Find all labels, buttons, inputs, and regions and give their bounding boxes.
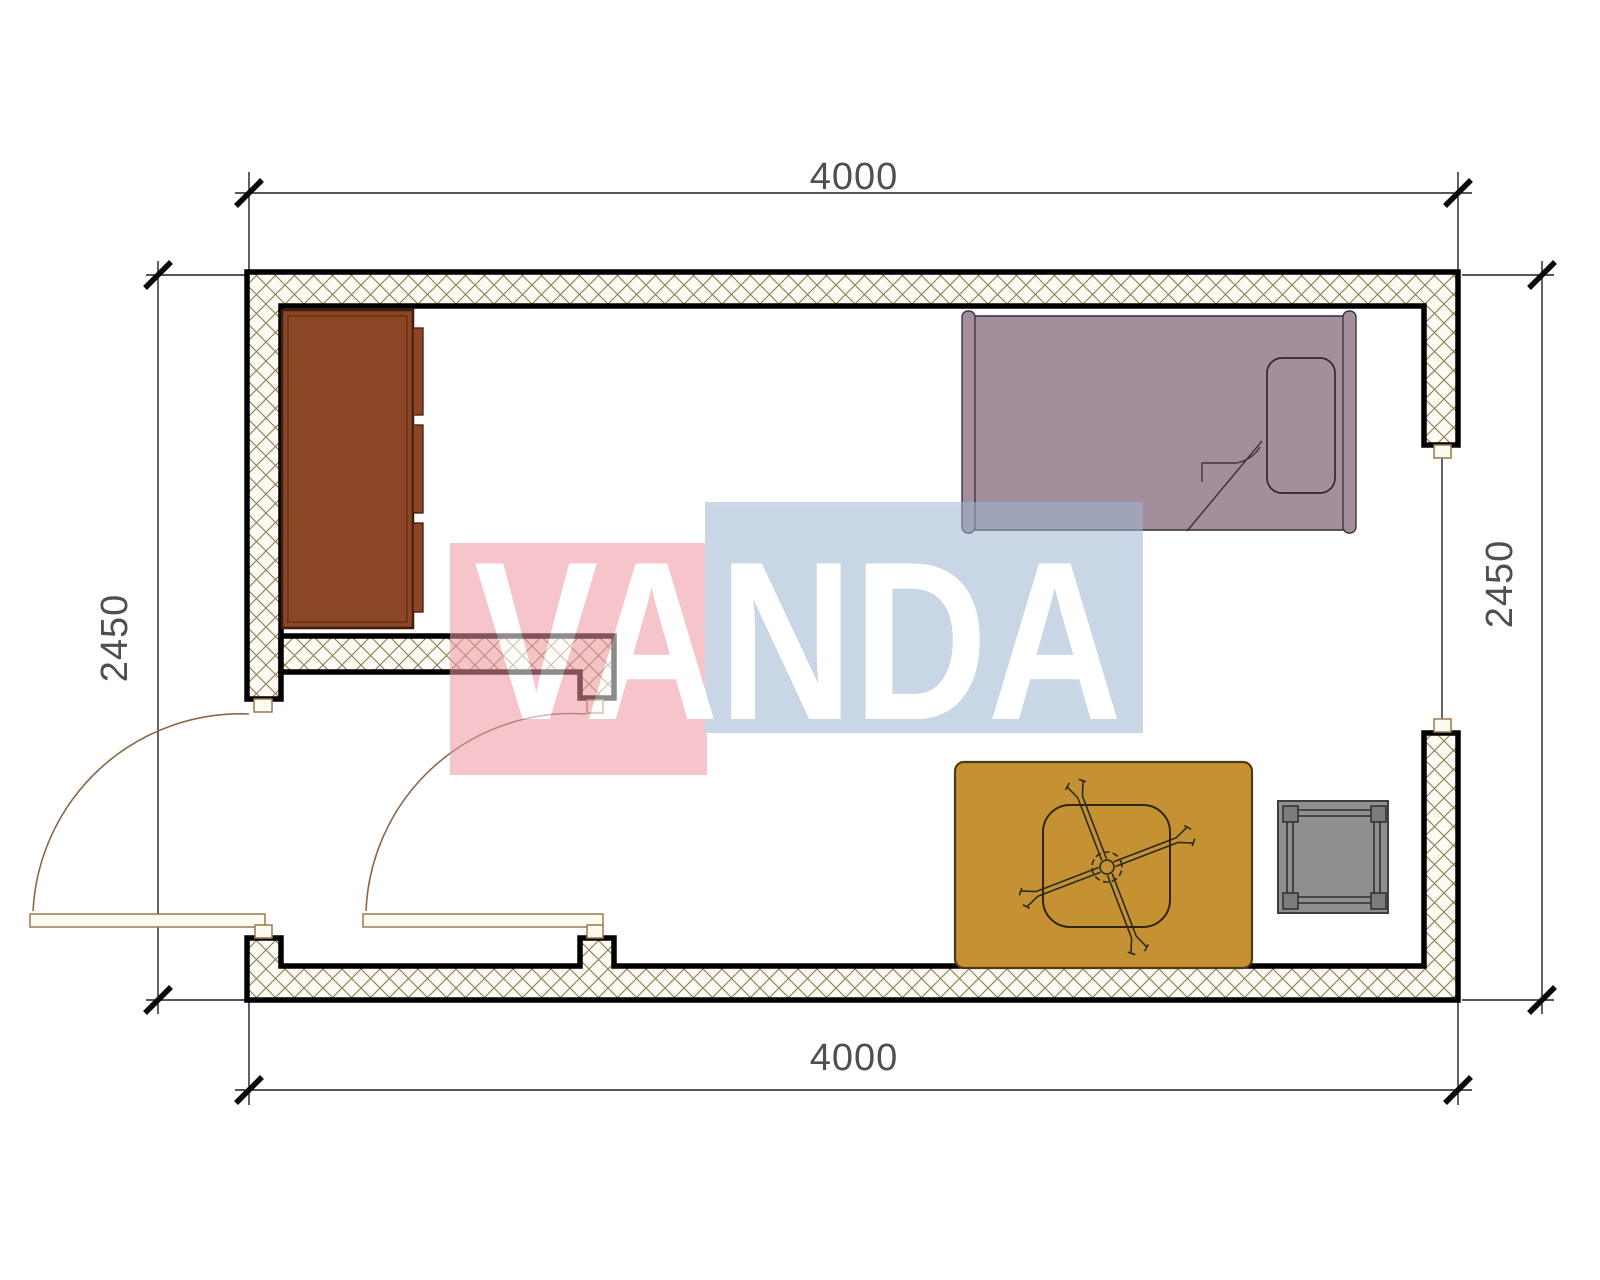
stool-leg xyxy=(1283,806,1298,822)
wardrobe-body xyxy=(282,310,413,628)
door-jamb xyxy=(255,925,272,938)
bed-footboard xyxy=(1343,311,1356,533)
window-jamb xyxy=(1434,445,1451,458)
door-jamb xyxy=(587,925,603,938)
stool xyxy=(1278,801,1388,913)
door-leaf xyxy=(30,914,265,927)
watermark-text: VANDA xyxy=(474,514,1122,767)
stool-leg xyxy=(1371,806,1386,822)
rug xyxy=(955,762,1252,968)
floor-plan-canvas: 4000 4000 2450 2450 xyxy=(0,0,1600,1280)
watermark: VANDA xyxy=(450,502,1143,775)
door-swing-arc xyxy=(33,714,249,911)
dimension-label-bottom: 4000 xyxy=(810,1037,899,1079)
wardrobe-drawer xyxy=(413,328,423,415)
floor-plan-page: 4000 4000 2450 2450 xyxy=(0,0,1600,1280)
exterior-wall-bottom-right xyxy=(247,733,1458,1000)
wardrobe-drawer xyxy=(413,425,423,513)
rug-and-table xyxy=(955,748,1252,986)
window-right xyxy=(1434,445,1451,732)
door-jamb xyxy=(254,699,272,712)
bed-headboard xyxy=(962,311,975,533)
wardrobe xyxy=(282,310,423,628)
window-jamb xyxy=(1434,719,1451,732)
wardrobe-drawer xyxy=(413,523,423,612)
dimension-label-right: 2450 xyxy=(1479,540,1521,629)
dimension-label-left: 2450 xyxy=(94,594,136,683)
door-leaf xyxy=(363,914,603,927)
dimension-label-top: 4000 xyxy=(810,156,899,198)
stool-leg xyxy=(1283,893,1298,909)
bed-mattress xyxy=(969,316,1349,530)
single-bed xyxy=(962,311,1356,533)
stool-leg xyxy=(1371,893,1386,909)
entry-door-left xyxy=(30,699,272,938)
